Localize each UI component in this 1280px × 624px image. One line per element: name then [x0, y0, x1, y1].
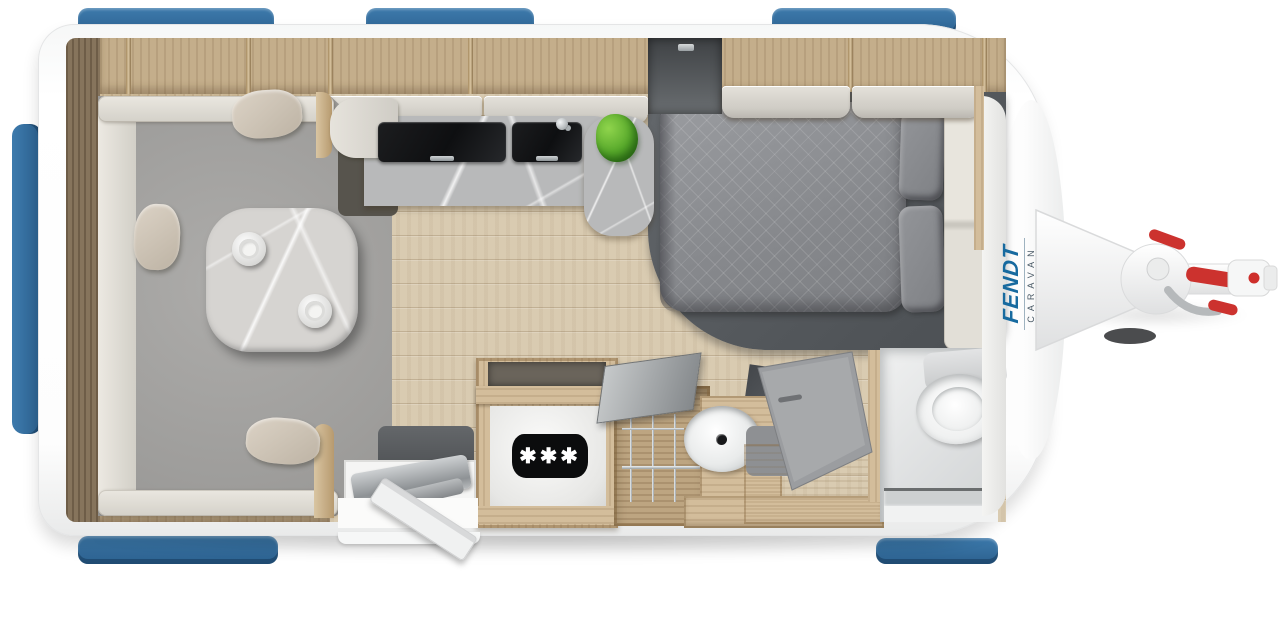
- sofa-back-bottom: [98, 490, 338, 516]
- fridge-badge-stars-icon: ✱✱✱: [519, 444, 581, 469]
- fridge-badge: ✱✱✱: [512, 434, 588, 478]
- wardrobe-bar-1: [622, 466, 706, 469]
- plant: [596, 114, 638, 162]
- coupler-tip: [1264, 266, 1277, 290]
- pivot-bolt: [1147, 258, 1169, 280]
- bathroom-ledge: [884, 506, 998, 522]
- wardrobe-rail-2: [652, 410, 654, 502]
- wardrobe-bar-2: [622, 428, 684, 430]
- caravan-floorplan: ✱✱✱ FENDT CARAVAN: [0, 0, 1280, 624]
- coupler-red-dot: [1249, 273, 1260, 284]
- logo-brand: FENDT: [1000, 244, 1022, 325]
- front-wood-strip: [974, 86, 984, 250]
- left-wall: [66, 38, 100, 522]
- bed-pillow-1: [898, 109, 945, 200]
- duvet-fold: [660, 102, 676, 312]
- fridge-top-bar: [476, 386, 618, 404]
- hob-handle: [430, 156, 454, 161]
- bed-overhead-door-2: [852, 86, 980, 118]
- bathroom-door: [740, 340, 890, 500]
- lounge-table: [206, 208, 358, 352]
- sofa-back-left: [98, 96, 136, 516]
- coffee-cup-1: [232, 232, 266, 266]
- bed-pillow-2: [898, 205, 946, 312]
- hitch-svg: [1030, 190, 1280, 390]
- jockey-wheel: [1104, 328, 1156, 344]
- logo-rule: [1024, 238, 1025, 330]
- bed-overhead-door-1: [722, 86, 850, 118]
- shelf-divider-2: [246, 38, 251, 94]
- shelf-divider-4: [468, 38, 473, 94]
- shelf-divider-3: [328, 38, 333, 94]
- bed-mattress: [660, 102, 906, 312]
- basin-drain: [716, 434, 727, 445]
- shelf-divider-1: [126, 38, 131, 94]
- coffee-cup-2: [298, 294, 332, 328]
- niche-latch: [678, 44, 694, 51]
- faucet: [556, 118, 568, 130]
- shelf-divider-5: [848, 38, 853, 94]
- fridge-bottom-bar: [476, 506, 618, 524]
- sink-handle: [536, 156, 558, 161]
- lounge-pillow-2: [132, 203, 181, 271]
- fridge-top-opening: [488, 362, 606, 386]
- bathroom-sill: [884, 488, 998, 508]
